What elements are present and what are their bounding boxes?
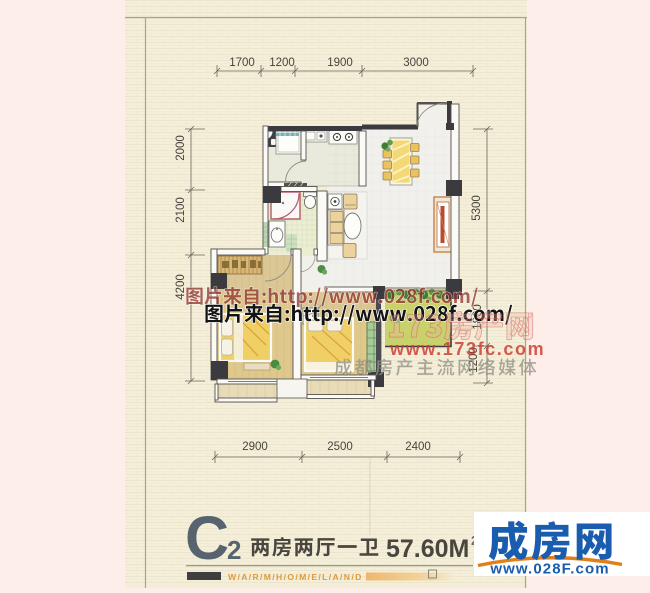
svg-text:1700: 1700	[229, 57, 255, 69]
svg-text:www.028F.com: www.028F.com	[489, 561, 609, 578]
svg-text:57.60M: 57.60M	[386, 535, 469, 563]
svg-text:5300: 5300	[471, 195, 483, 221]
svg-text:2100: 2100	[175, 197, 187, 223]
svg-text:2000: 2000	[175, 135, 187, 161]
svg-text:W/A/R/M/H/O/M/E/L/A/N/D: W/A/R/M/H/O/M/E/L/A/N/D	[228, 572, 363, 582]
svg-text:2500: 2500	[327, 441, 353, 453]
svg-text:2400: 2400	[405, 441, 431, 453]
svg-text:4200: 4200	[175, 274, 187, 300]
svg-text:2: 2	[227, 535, 241, 565]
svg-text:C: C	[185, 504, 229, 572]
svg-text:1900: 1900	[327, 57, 353, 69]
svg-text:www.173fc.com: www.173fc.com	[389, 339, 545, 359]
svg-text:3000: 3000	[403, 57, 429, 69]
svg-text:1200: 1200	[269, 57, 295, 69]
svg-text:2900: 2900	[242, 441, 268, 453]
